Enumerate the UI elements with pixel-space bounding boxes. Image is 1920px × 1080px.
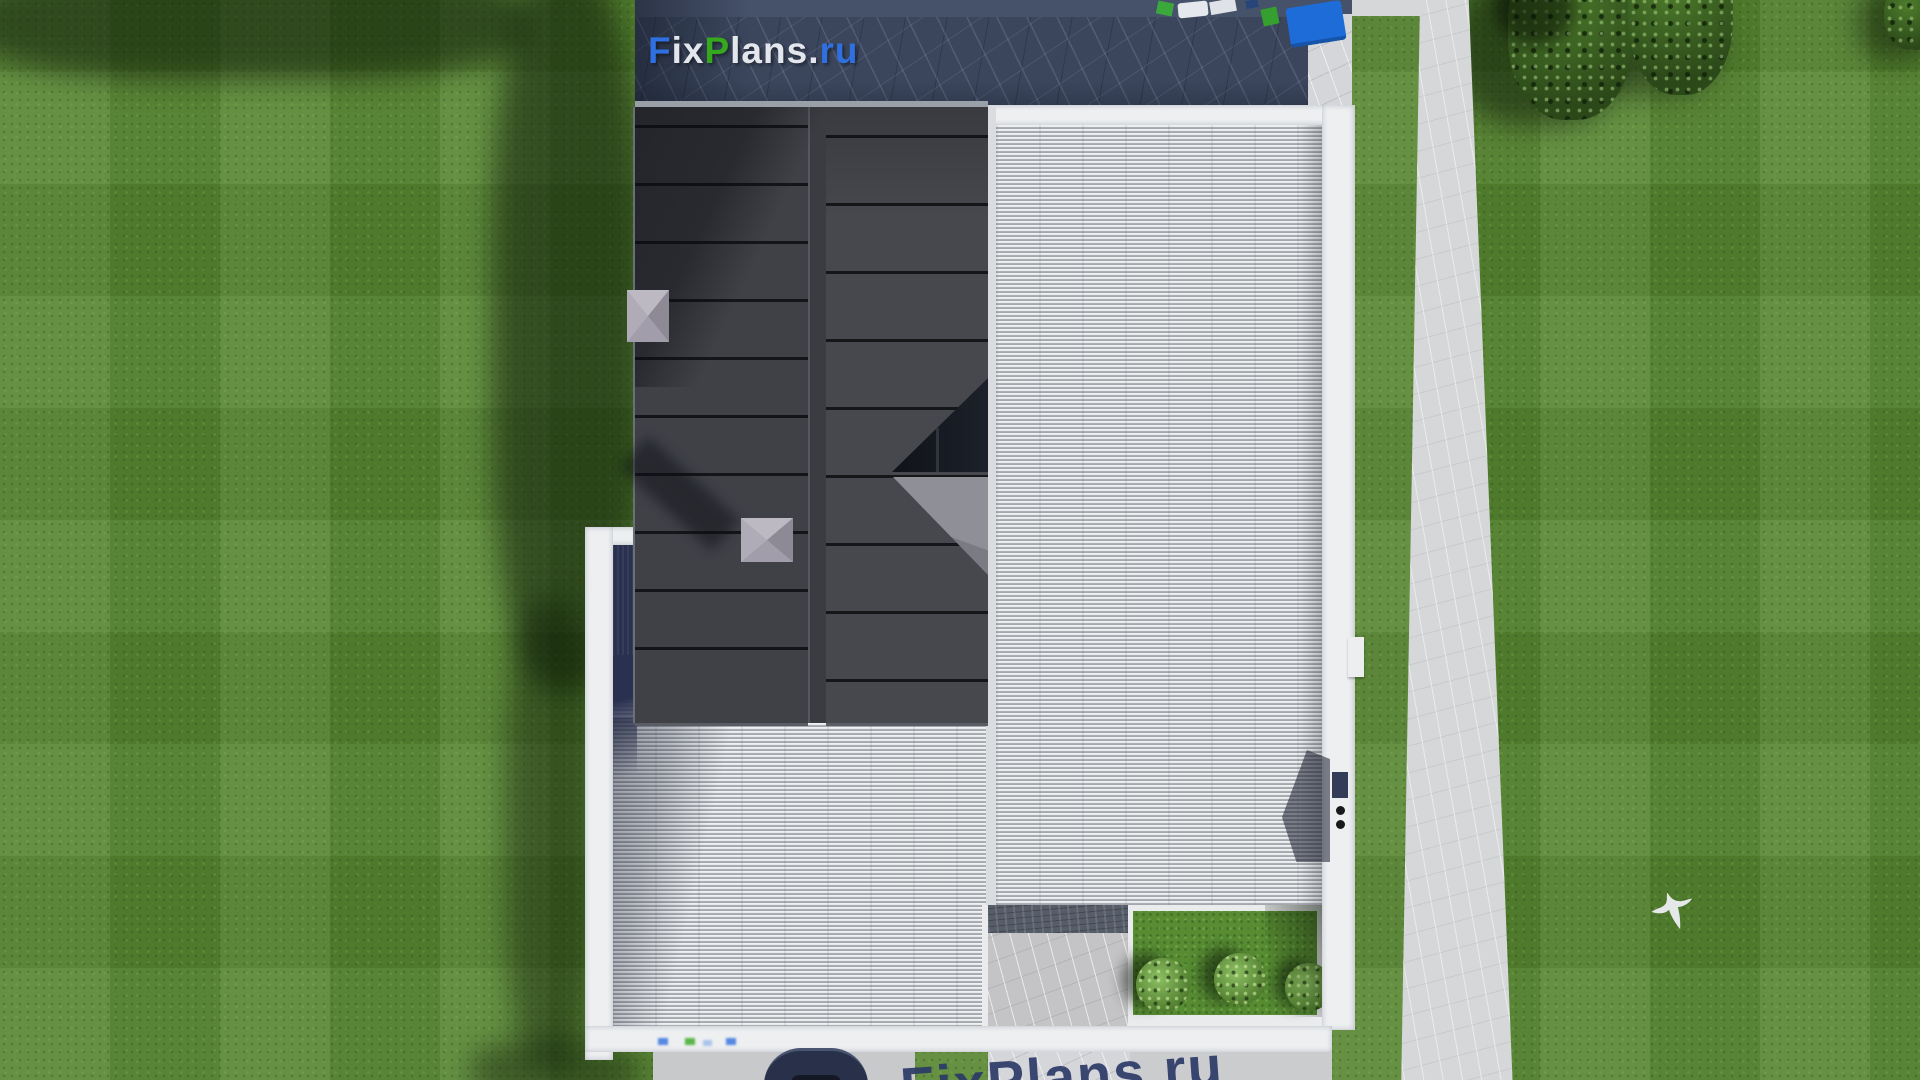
mini-watermark-dot-blue-2 <box>726 1038 736 1045</box>
flat-roof-deck <box>996 125 1322 905</box>
logo-letter-f: F <box>648 30 672 71</box>
skylight-mullion <box>936 428 939 472</box>
courtyard-stone-dark-band <box>988 903 1128 933</box>
garden-path <box>1395 0 1520 1080</box>
bush-1 <box>1136 958 1190 1012</box>
mini-watermark-dot-green <box>685 1038 695 1045</box>
logo-letter-p: P <box>704 30 730 71</box>
courtyard-tree-shadow <box>1265 905 1322 1017</box>
parapet-vent-box <box>1348 637 1364 677</box>
house-shadow-left-lower <box>505 600 597 1070</box>
toy-block-green-2 <box>1260 7 1279 27</box>
car-windshield <box>790 1075 842 1080</box>
courtyard <box>982 903 1322 1028</box>
courtyard-stone-pad <box>988 933 1128 1028</box>
path-top-stub <box>1345 0 1423 16</box>
parapet-vent-dot-2 <box>1336 820 1345 829</box>
treeline-shadow-top-left <box>0 0 530 80</box>
roof-hatch-panel <box>1332 772 1348 798</box>
dark-roof-corner-shadow <box>635 107 826 387</box>
logo-letters-ix: ix <box>672 30 705 71</box>
parapet-top <box>986 105 1354 125</box>
logo-letters-ru: ru <box>819 30 858 71</box>
bush-2 <box>1214 953 1266 1005</box>
logo-dot: . <box>808 30 819 71</box>
mini-watermark-dot-blue-1 <box>658 1038 668 1045</box>
parapet-vent-dot-1 <box>1336 806 1345 815</box>
parapet-right <box>1322 105 1355 1030</box>
deck-diagonal-shadow <box>610 718 730 1030</box>
dark-roof-right-top-shade <box>826 107 988 217</box>
mini-watermark-dot-light <box>703 1040 712 1046</box>
parapet-left <box>585 527 613 1060</box>
toy-block-white-1 <box>1177 0 1208 18</box>
bird <box>1644 882 1702 940</box>
aerial-render-scene: FixPlans.ru <box>0 0 1920 1080</box>
logo-letters-lans: lans <box>730 30 808 71</box>
chimney-1 <box>627 290 669 342</box>
chimney-2 <box>741 518 793 562</box>
logo-watermark: FixPlans.ru <box>648 30 858 72</box>
